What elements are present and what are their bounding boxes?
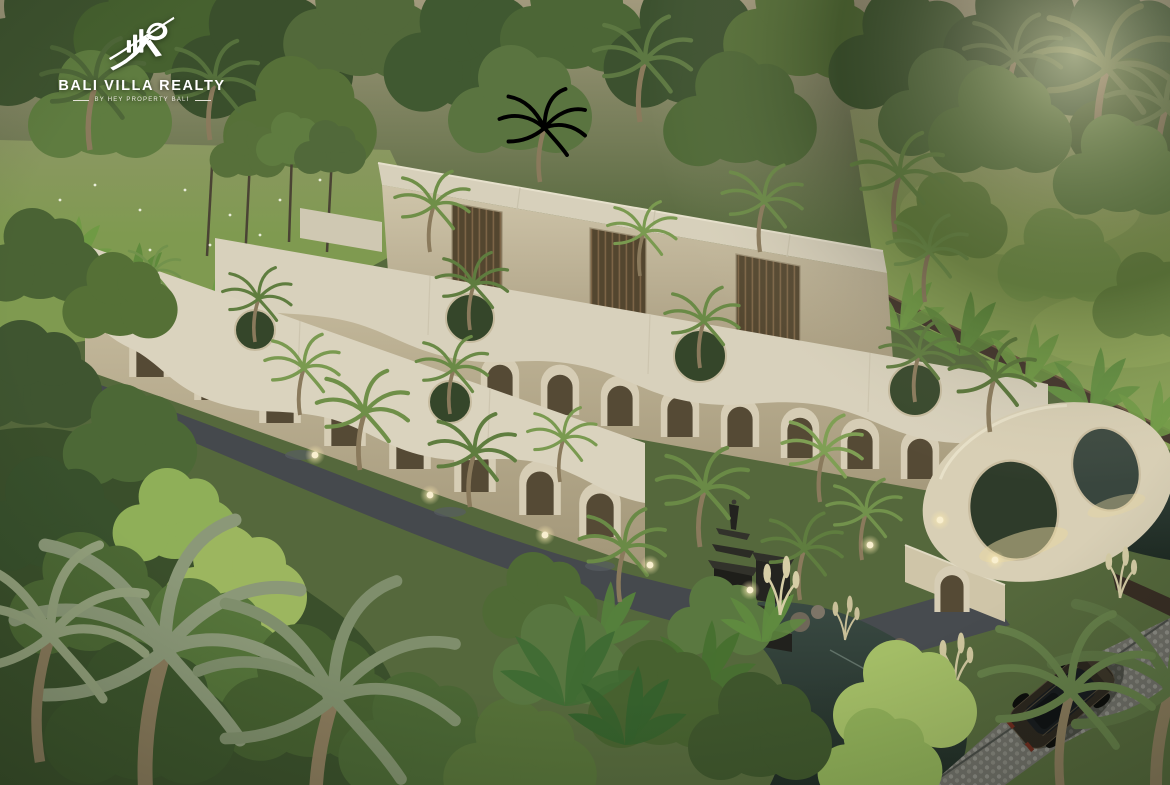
tagline-text: BY HEY PROPERTY BALI: [95, 97, 190, 103]
tagline-dash-right: [195, 100, 211, 101]
brand-logo-mark-icon: [99, 14, 185, 76]
brand-logo: BALI VILLA REALTY BY HEY PROPERTY BALI: [52, 14, 232, 103]
brand-logo-title: BALI VILLA REALTY: [58, 78, 225, 94]
villa-aerial-render: BALI VILLA REALTY BY HEY PROPERTY BALI: [0, 0, 1170, 785]
brand-logo-tagline: BY HEY PROPERTY BALI: [73, 97, 212, 103]
sunlight-haze: [0, 0, 1170, 785]
tagline-dash-left: [73, 100, 89, 101]
scene-illustration: [0, 0, 1170, 785]
